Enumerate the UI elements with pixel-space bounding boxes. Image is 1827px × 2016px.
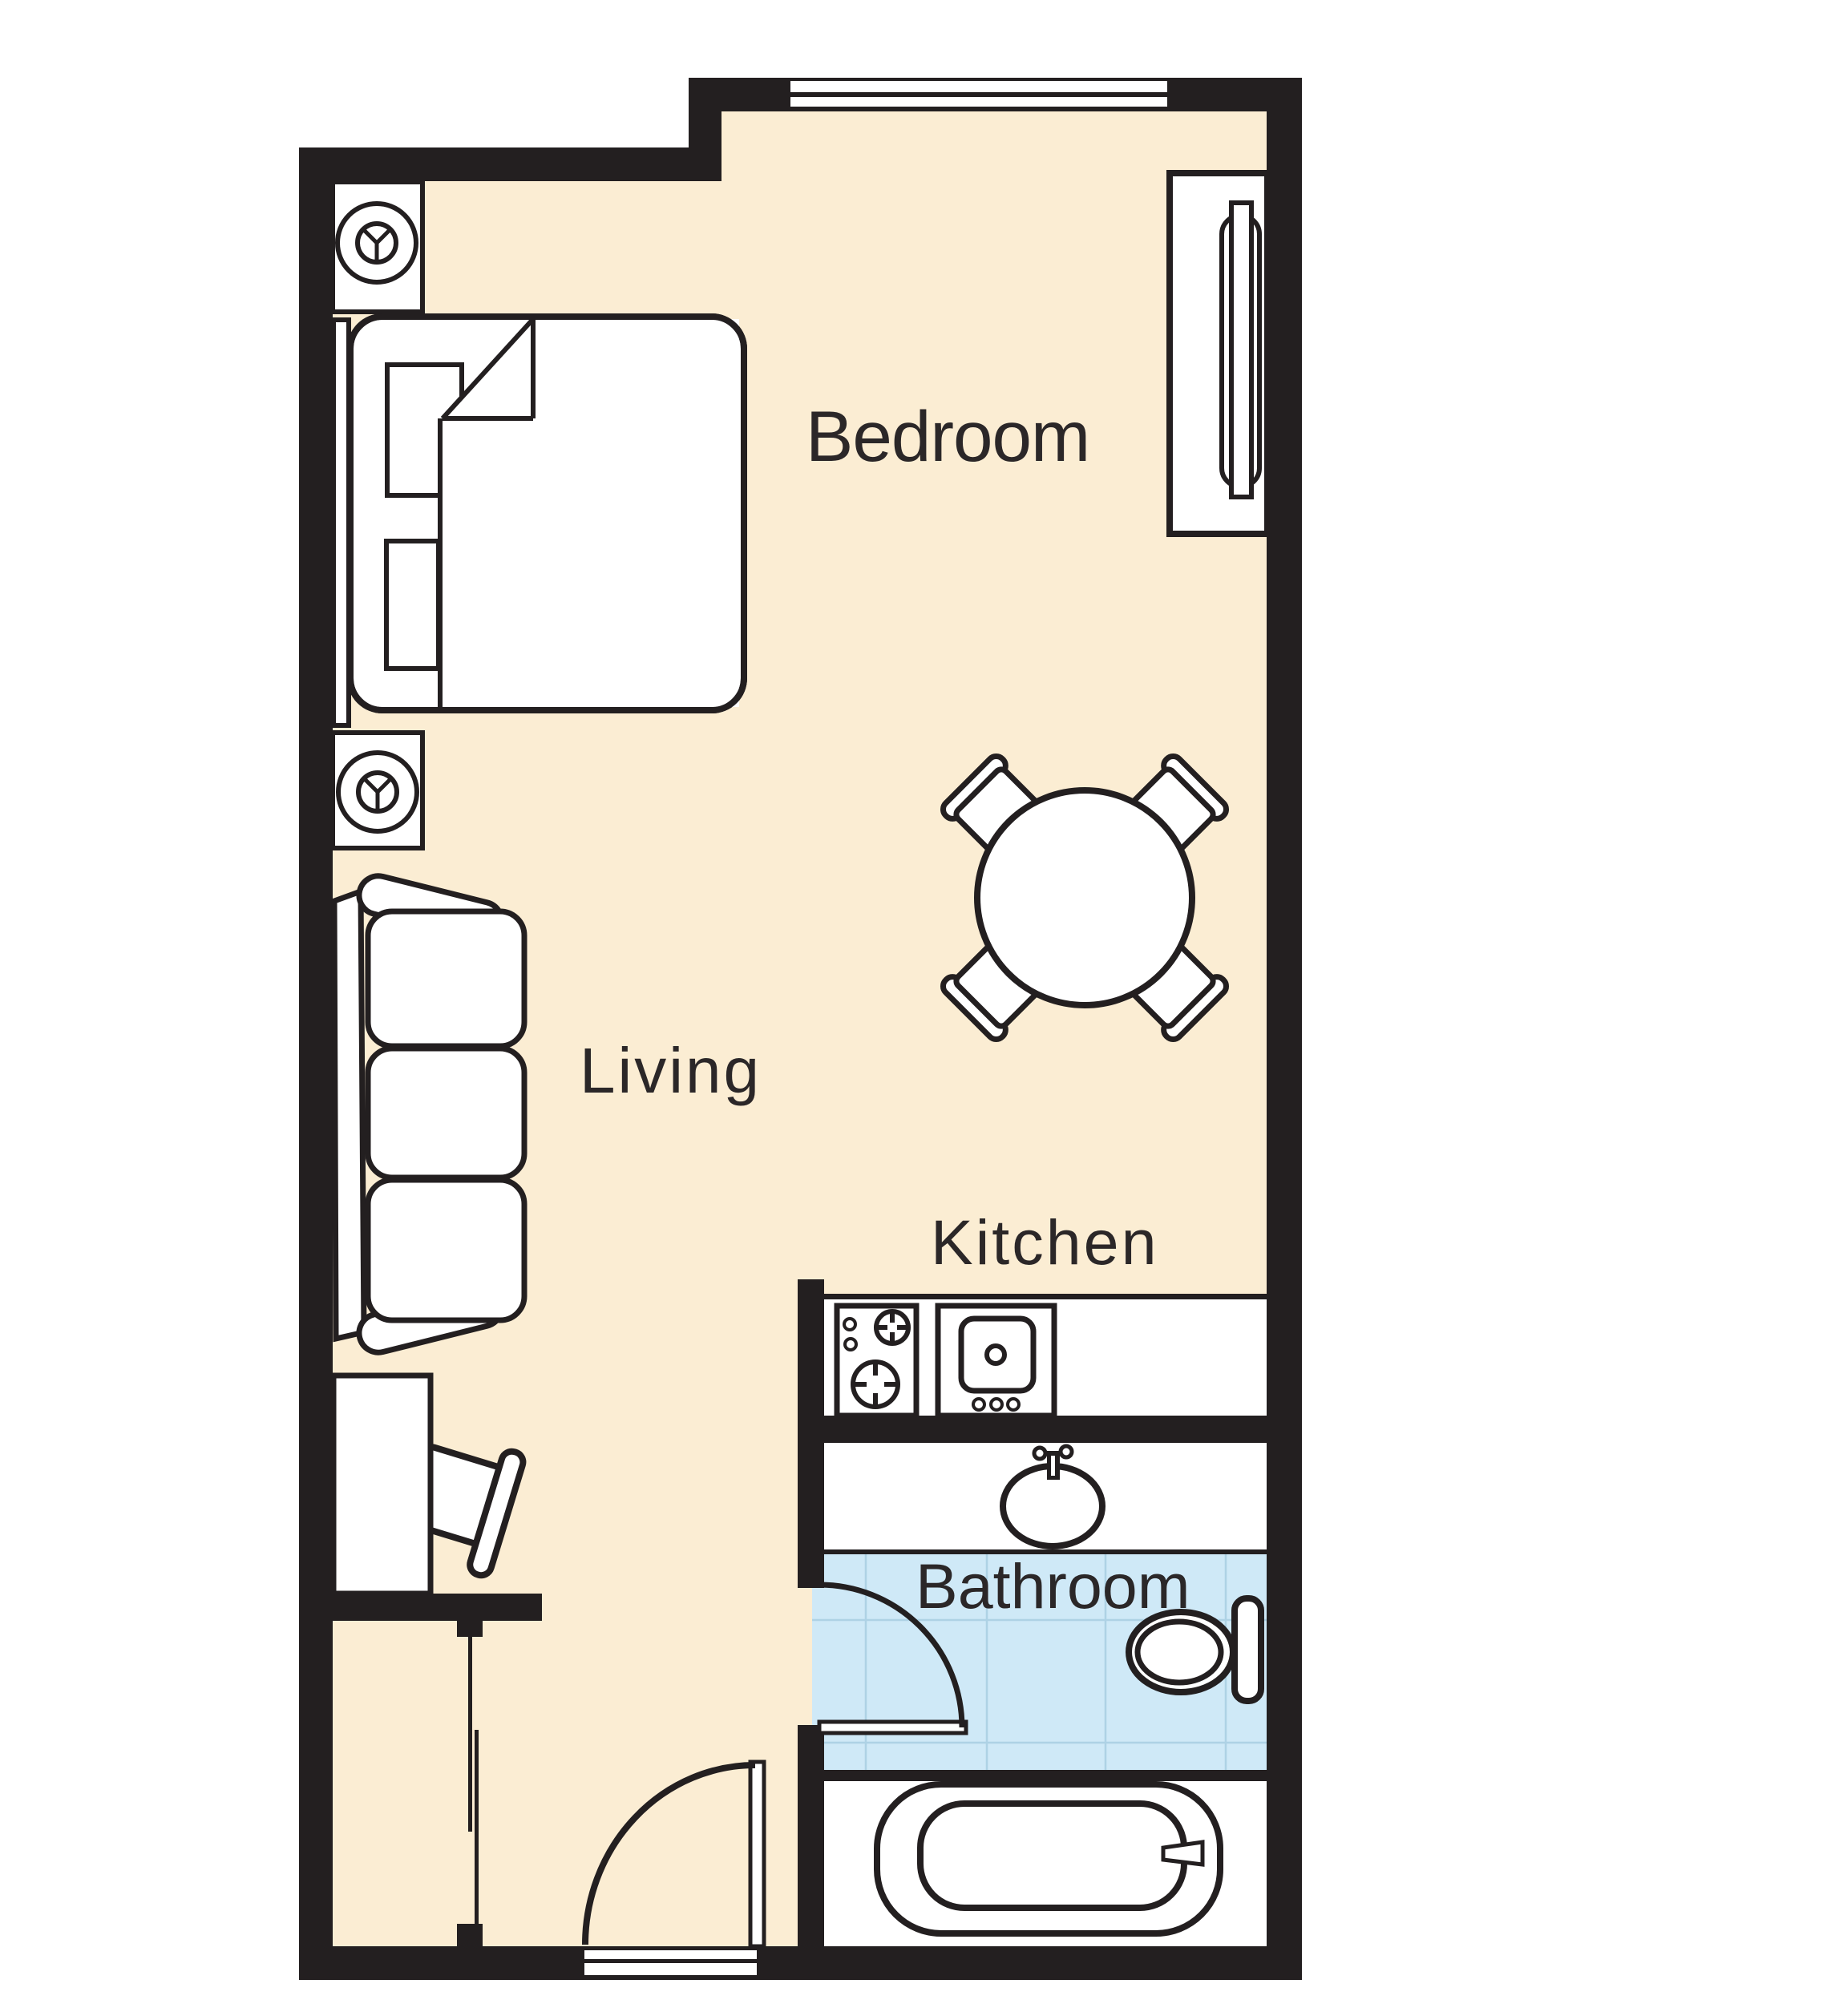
svg-text:Bedroom: Bedroom xyxy=(806,396,1089,476)
svg-text:Kitchen: Kitchen xyxy=(931,1206,1159,1278)
svg-text:Living: Living xyxy=(580,1035,762,1106)
svg-text:Bathroom: Bathroom xyxy=(916,1550,1190,1622)
